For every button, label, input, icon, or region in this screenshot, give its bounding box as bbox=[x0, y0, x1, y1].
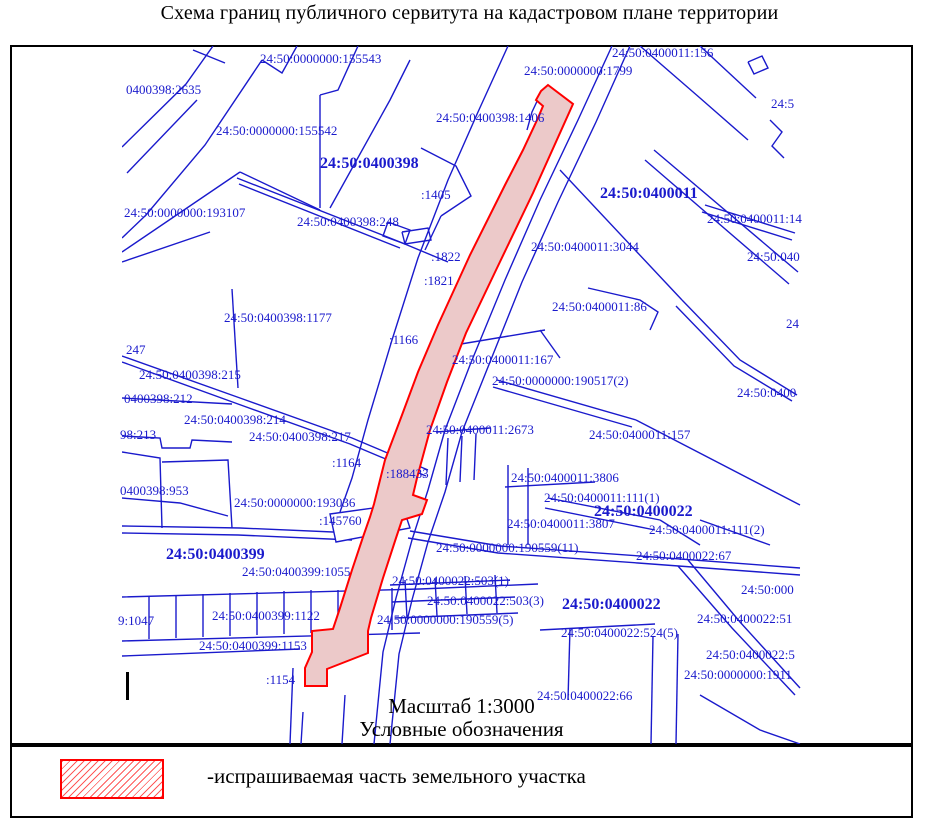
cadastral-scheme-page: Схема границ публичного сервитута на кад… bbox=[0, 0, 939, 828]
parcel-lines bbox=[122, 46, 800, 744]
map-scale-text: Масштаб 1:3000 bbox=[10, 694, 913, 719]
legend-heading: Условные обозначения bbox=[10, 717, 913, 742]
servitude-area-highlight bbox=[305, 85, 573, 686]
